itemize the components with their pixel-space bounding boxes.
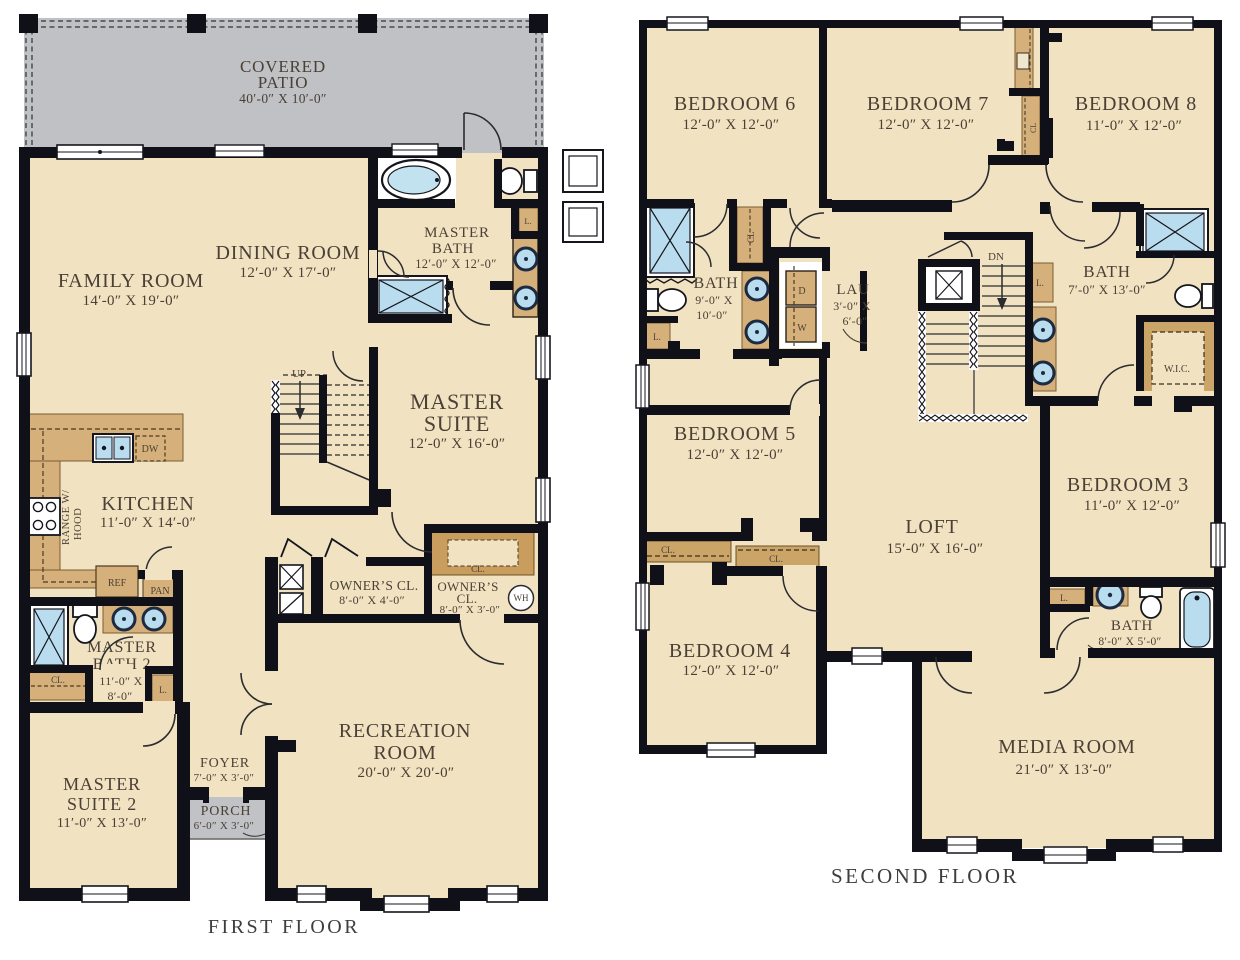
svg-text:BEDROOM 3: BEDROOM 3 [1067, 474, 1189, 496]
svg-text:SUITE: SUITE [424, 411, 490, 436]
svg-text:BEDROOM 7: BEDROOM 7 [867, 93, 989, 115]
svg-text:7′-0″ X 3′-0″: 7′-0″ X 3′-0″ [194, 772, 255, 784]
svg-text:12′-0″ X 12′-0″: 12′-0″ X 12′-0″ [878, 117, 975, 133]
svg-text:ROOM: ROOM [373, 742, 436, 764]
svg-text:PAN: PAN [150, 586, 169, 597]
svg-text:LOFT: LOFT [905, 516, 958, 538]
svg-text:DINING ROOM: DINING ROOM [216, 242, 361, 264]
svg-text:14′-0″ X 19′-0″: 14′-0″ X 19′-0″ [83, 293, 180, 309]
svg-text:CL.: CL. [471, 564, 485, 574]
svg-text:21′-0″ X 13′-0″: 21′-0″ X 13′-0″ [1016, 762, 1113, 778]
svg-text:BATH: BATH [432, 241, 474, 257]
svg-text:L.: L. [1036, 278, 1044, 288]
svg-text:BEDROOM 4: BEDROOM 4 [669, 640, 791, 662]
svg-text:FOYER: FOYER [200, 756, 250, 771]
svg-text:BEDROOM 6: BEDROOM 6 [674, 93, 796, 115]
svg-text:DN: DN [988, 251, 1004, 263]
svg-text:L.: L. [1060, 593, 1068, 603]
svg-text:9′-0″ X: 9′-0″ X [695, 293, 732, 307]
svg-text:DW: DW [142, 444, 159, 455]
svg-text:40′-0″ X 10′-0″: 40′-0″ X 10′-0″ [239, 91, 327, 106]
svg-text:OWNER’S CL.: OWNER’S CL. [330, 578, 419, 593]
svg-text:10′-0″: 10′-0″ [696, 308, 727, 322]
svg-text:MASTER: MASTER [424, 225, 490, 241]
svg-text:BEDROOM 8: BEDROOM 8 [1075, 93, 1197, 115]
svg-text:PATIO: PATIO [258, 73, 309, 92]
svg-text:6′-0″: 6′-0″ [842, 314, 867, 328]
svg-text:W.I.C.: W.I.C. [1164, 364, 1190, 375]
svg-text:L.: L. [524, 216, 531, 226]
svg-text:W: W [797, 323, 807, 334]
svg-text:KITCHEN: KITCHEN [101, 493, 194, 515]
svg-text:FIRST FLOOR: FIRST FLOOR [208, 916, 360, 938]
svg-text:CL: CL [746, 231, 756, 243]
svg-text:6′-0″ X 3′-0″: 6′-0″ X 3′-0″ [194, 820, 255, 832]
svg-text:BATH: BATH [1083, 262, 1131, 281]
svg-text:MASTER: MASTER [63, 774, 141, 794]
svg-text:D: D [798, 286, 805, 297]
svg-text:LAU: LAU [836, 282, 869, 298]
svg-text:BEDROOM 5: BEDROOM 5 [674, 423, 796, 445]
svg-text:12′-0″ X 12′-0″: 12′-0″ X 12′-0″ [683, 663, 780, 679]
svg-text:CL.: CL. [769, 554, 783, 564]
svg-text:8′-0″ X 3′-0″: 8′-0″ X 3′-0″ [440, 604, 501, 616]
svg-text:12′-0″ X 12′-0″: 12′-0″ X 12′-0″ [687, 447, 784, 463]
svg-text:7′-0″ X 13′-0″: 7′-0″ X 13′-0″ [1068, 282, 1146, 297]
svg-text:3′-0″ X: 3′-0″ X [833, 299, 870, 313]
svg-text:MASTER: MASTER [87, 639, 157, 656]
svg-text:11′-0″ X 13′-0″: 11′-0″ X 13′-0″ [57, 816, 147, 831]
svg-text:11′-0″ X 14′-0″: 11′-0″ X 14′-0″ [100, 515, 196, 531]
svg-text:CL.: CL. [661, 545, 675, 555]
svg-text:BATH: BATH [694, 275, 739, 292]
svg-text:8′-0″: 8′-0″ [107, 689, 132, 703]
svg-text:8′-0″ X 4′-0″: 8′-0″ X 4′-0″ [339, 593, 405, 607]
svg-text:12′-0″ X 16′-0″: 12′-0″ X 16′-0″ [409, 436, 506, 452]
svg-text:SUITE 2: SUITE 2 [67, 794, 137, 814]
svg-text:20′-0″ X 20′-0″: 20′-0″ X 20′-0″ [358, 765, 455, 781]
svg-text:CL: CL [1029, 123, 1038, 133]
svg-text:11′-0″ X: 11′-0″ X [99, 674, 142, 688]
svg-text:RANGE W/: RANGE W/ [61, 490, 72, 545]
svg-text:L.: L. [653, 332, 661, 342]
svg-text:8′-0″ X 5′-0″: 8′-0″ X 5′-0″ [1098, 636, 1161, 648]
svg-text:WH: WH [514, 593, 529, 603]
svg-text:FAMILY ROOM: FAMILY ROOM [58, 270, 204, 292]
svg-text:BATH: BATH [1111, 618, 1153, 634]
svg-text:MEDIA ROOM: MEDIA ROOM [998, 736, 1135, 758]
svg-text:RECREATION: RECREATION [339, 720, 471, 742]
svg-text:15′-0″ X 16′-0″: 15′-0″ X 16′-0″ [887, 541, 984, 557]
svg-text:HOOD: HOOD [73, 508, 84, 540]
svg-text:12′-0″ X 17′-0″: 12′-0″ X 17′-0″ [240, 265, 337, 281]
svg-text:CL.: CL. [51, 675, 65, 685]
svg-text:REF: REF [108, 578, 127, 589]
svg-text:11′-0″ X 12′-0″: 11′-0″ X 12′-0″ [1084, 498, 1180, 514]
svg-text:PORCH: PORCH [201, 804, 252, 819]
svg-text:UP: UP [292, 368, 306, 380]
svg-text:L.: L. [159, 685, 167, 695]
svg-text:11′-0″ X 12′-0″: 11′-0″ X 12′-0″ [1086, 118, 1182, 134]
svg-text:12′-0″ X 12′-0″: 12′-0″ X 12′-0″ [415, 257, 496, 271]
svg-text:SECOND FLOOR: SECOND FLOOR [831, 864, 1019, 888]
svg-text:12′-0″ X 12′-0″: 12′-0″ X 12′-0″ [683, 117, 780, 133]
